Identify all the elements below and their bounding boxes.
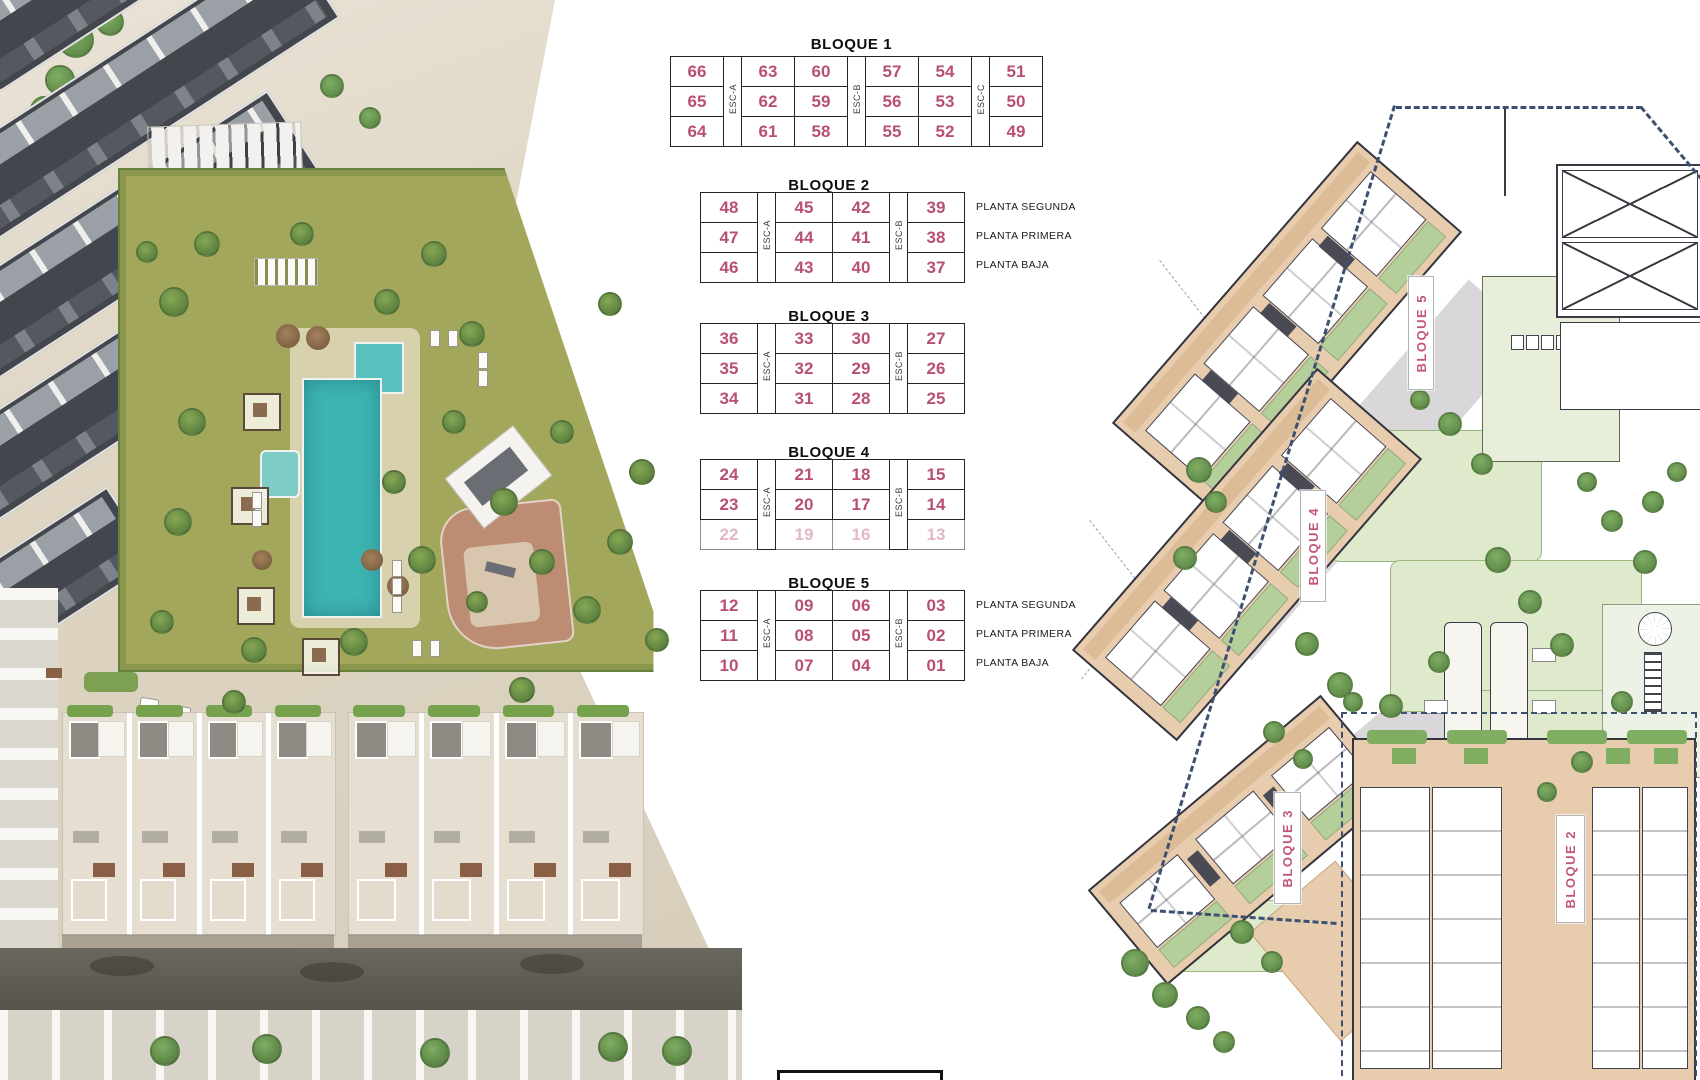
unit-cell: 15 bbox=[908, 460, 965, 490]
palm-tree bbox=[222, 690, 246, 714]
plan-building-label-text: BLOQUE 2 bbox=[1563, 830, 1578, 908]
palm-shadow bbox=[520, 954, 584, 974]
spiral-stair bbox=[1638, 612, 1672, 646]
stairwell-label: ESC-B bbox=[894, 351, 904, 381]
palm-tree bbox=[459, 321, 485, 347]
swimming-pool bbox=[302, 378, 382, 618]
palapa-umbrella bbox=[252, 550, 272, 570]
unit-divider bbox=[197, 713, 202, 935]
stairwell-label: ESC-A bbox=[762, 487, 772, 517]
stairwell-label: ESC-C bbox=[976, 84, 986, 115]
roof-patio bbox=[138, 721, 169, 759]
unit-cell: 56 bbox=[866, 87, 919, 117]
unit-cell: 44 bbox=[776, 223, 833, 253]
unit-cell: 14 bbox=[908, 490, 965, 520]
stair-ramp bbox=[1644, 652, 1662, 712]
plan-tree bbox=[1438, 412, 1462, 436]
plan-tree bbox=[1633, 550, 1657, 574]
lower-patio bbox=[210, 879, 246, 921]
plan-tree bbox=[1152, 982, 1178, 1008]
sun-lounger bbox=[252, 492, 262, 509]
court-bench bbox=[1511, 335, 1524, 350]
unit-cell: 03 bbox=[908, 591, 965, 621]
palm-tree bbox=[136, 241, 158, 263]
plan-tree bbox=[1410, 390, 1430, 410]
palm-tree bbox=[550, 420, 574, 444]
palm-tree bbox=[645, 628, 669, 652]
pergola bbox=[302, 638, 340, 676]
playground bbox=[437, 498, 575, 654]
service-building bbox=[1556, 164, 1700, 318]
roof-hedge bbox=[577, 705, 629, 717]
unit-cell: 54 bbox=[919, 57, 972, 87]
palapa-umbrella bbox=[276, 324, 300, 348]
unit-cell: 51 bbox=[990, 57, 1043, 87]
planta-label: PLANTA PRIMERA bbox=[976, 628, 1072, 640]
roof-dining bbox=[609, 863, 631, 877]
palm-tree bbox=[340, 628, 368, 656]
plan-tree bbox=[1577, 472, 1597, 492]
unit-cell: 49 bbox=[990, 117, 1043, 147]
stairwell-cell: ESC-B bbox=[890, 193, 908, 283]
palm-tree bbox=[382, 470, 406, 494]
plan-tree bbox=[1261, 951, 1283, 973]
planta-label: PLANTA BAJA bbox=[976, 657, 1049, 669]
palm-tree bbox=[490, 488, 518, 516]
unit-cell: 58 bbox=[795, 117, 848, 147]
unit-cell: 61 bbox=[742, 117, 795, 147]
unit-cell: 31 bbox=[776, 384, 833, 414]
boundary-box-bloque-2 bbox=[1341, 712, 1697, 1080]
plan-tree bbox=[1611, 691, 1633, 713]
shrub bbox=[359, 107, 381, 129]
sun-lounger bbox=[478, 370, 488, 387]
roof-room bbox=[387, 721, 416, 757]
palm-tree bbox=[421, 241, 447, 267]
unit-cell: 63 bbox=[742, 57, 795, 87]
roof-room bbox=[462, 721, 491, 757]
plan-tree bbox=[1230, 920, 1254, 944]
roof-patio bbox=[505, 721, 538, 759]
roof-patio bbox=[430, 721, 463, 759]
plan-tree bbox=[1186, 457, 1212, 483]
aerial-render bbox=[0, 0, 742, 1080]
unit-cell: 12 bbox=[701, 591, 758, 621]
unit-cell: 09 bbox=[776, 591, 833, 621]
roof-patio bbox=[355, 721, 388, 759]
roof-hedge bbox=[353, 705, 405, 717]
unit-table-2: 48ESC-A4542ESC-B394744413846434037 bbox=[700, 192, 965, 283]
plan-tree bbox=[1379, 694, 1403, 718]
sun-lounger bbox=[252, 510, 262, 527]
unit-cell: 59 bbox=[795, 87, 848, 117]
roof-dining bbox=[163, 863, 185, 877]
palapa-umbrella bbox=[361, 549, 383, 571]
palm-tree bbox=[241, 637, 267, 663]
roof-room bbox=[237, 721, 263, 757]
court-bench bbox=[1541, 335, 1554, 350]
plan-building-label-text: BLOQUE 4 bbox=[1306, 507, 1321, 585]
plan-tree bbox=[1205, 491, 1227, 513]
unit-cell: 39 bbox=[908, 193, 965, 223]
roof-hedge bbox=[67, 705, 113, 717]
lower-patio bbox=[140, 879, 176, 921]
unit-cell: 65 bbox=[671, 87, 724, 117]
townhouse-block bbox=[348, 712, 644, 936]
unit-cell: 47 bbox=[701, 223, 758, 253]
palm-tree bbox=[442, 410, 466, 434]
plan-tree bbox=[1428, 651, 1450, 673]
stairwell-cell: ESC-B bbox=[890, 591, 908, 681]
unit-cell: 53 bbox=[919, 87, 972, 117]
unit-cell: 62 bbox=[742, 87, 795, 117]
plan-tree bbox=[1485, 547, 1511, 573]
street-tree bbox=[252, 1034, 282, 1064]
sun-lounger bbox=[448, 330, 458, 347]
unit-cell: 55 bbox=[866, 117, 919, 147]
unit-cell: 20 bbox=[776, 490, 833, 520]
unit-cell: 26 bbox=[908, 354, 965, 384]
stairwell-label: ESC-B bbox=[894, 220, 904, 250]
roof-hedge bbox=[136, 705, 182, 717]
palm-tree bbox=[374, 289, 400, 315]
picnic-bench bbox=[46, 668, 62, 678]
roof-dining bbox=[301, 863, 323, 877]
plan-building-label: BLOQUE 4 bbox=[1300, 490, 1326, 602]
lower-patio bbox=[357, 879, 396, 921]
unit-cell: 28 bbox=[833, 384, 890, 414]
braced-bay bbox=[1562, 242, 1698, 310]
palm-tree bbox=[529, 549, 555, 575]
plan-tree bbox=[1263, 721, 1285, 743]
roof-dining bbox=[460, 863, 482, 877]
lower-patio bbox=[279, 879, 315, 921]
roof-hedge bbox=[275, 705, 321, 717]
pergola-shade bbox=[247, 597, 261, 611]
stairwell-cell: ESC-A bbox=[758, 591, 776, 681]
roof-patio bbox=[208, 721, 239, 759]
street-tree bbox=[662, 1036, 692, 1066]
roof-sofa bbox=[212, 831, 238, 843]
legend-box-partial bbox=[777, 1070, 943, 1080]
unit-cell: 04 bbox=[833, 651, 890, 681]
block-table-title: BLOQUE 1 bbox=[670, 36, 1033, 53]
unit-cell: 43 bbox=[776, 253, 833, 283]
unit-cell: 64 bbox=[671, 117, 724, 147]
roof-patio bbox=[69, 721, 100, 759]
court-bench bbox=[1526, 335, 1539, 350]
playground-sand bbox=[463, 541, 541, 628]
plan-tree bbox=[1186, 1006, 1210, 1030]
palm-shadow bbox=[300, 962, 364, 982]
parking-hedge bbox=[84, 672, 138, 692]
stairwell-cell: ESC-B bbox=[890, 460, 908, 550]
townhouse-column bbox=[0, 588, 58, 950]
sun-lounger bbox=[430, 330, 440, 347]
unit-cell: 10 bbox=[701, 651, 758, 681]
roof-dining bbox=[534, 863, 556, 877]
sun-lounger bbox=[392, 596, 402, 613]
unit-table-1: 66ESC-A6360ESC-B5754ESC-C516562595653506… bbox=[670, 56, 1043, 147]
pergola bbox=[243, 393, 281, 431]
unit-table-3: 36ESC-A3330ESC-B273532292634312825 bbox=[700, 323, 965, 414]
site-plan-page: BLOQUE 166ESC-A6360ESC-B5754ESC-C5165625… bbox=[0, 0, 1700, 1080]
townhouse-block bbox=[62, 712, 336, 936]
unit-cell: 23 bbox=[701, 490, 758, 520]
unit-divider bbox=[568, 713, 573, 935]
plan-tree bbox=[1642, 491, 1664, 513]
stairwell-cell: ESC-A bbox=[724, 57, 742, 147]
roof-sofa bbox=[434, 831, 460, 843]
street-tree bbox=[420, 1038, 450, 1068]
palm-tree bbox=[607, 529, 633, 555]
sun-lounger bbox=[392, 560, 402, 577]
unit-cell: 25 bbox=[908, 384, 965, 414]
roof-patio bbox=[579, 721, 612, 759]
unit-cell: 08 bbox=[776, 621, 833, 651]
unit-cell: 22 bbox=[701, 520, 758, 550]
unit-cell: 57 bbox=[866, 57, 919, 87]
stairwell-cell: ESC-A bbox=[758, 460, 776, 550]
roof-room bbox=[98, 721, 124, 757]
palm-shadow bbox=[90, 956, 154, 976]
roof-room bbox=[168, 721, 194, 757]
unit-cell: 35 bbox=[701, 354, 758, 384]
plan-tree bbox=[1293, 749, 1313, 769]
access-ramp bbox=[1560, 322, 1700, 410]
roof-dining bbox=[93, 863, 115, 877]
unit-cell: 50 bbox=[990, 87, 1043, 117]
unit-cell: 36 bbox=[701, 324, 758, 354]
lower-patio bbox=[71, 879, 107, 921]
street-tree bbox=[598, 1032, 628, 1062]
plan-tree bbox=[1295, 632, 1319, 656]
stairwell-label: ESC-B bbox=[894, 487, 904, 517]
street bbox=[0, 948, 742, 1010]
unit-table-5: 12ESC-A0906ESC-B031108050210070401 bbox=[700, 590, 965, 681]
roof-dining bbox=[232, 863, 254, 877]
plan-building-label: BLOQUE 3 bbox=[1274, 792, 1301, 904]
unit-cell: 52 bbox=[919, 117, 972, 147]
unit-cell: 46 bbox=[701, 253, 758, 283]
plan-tree bbox=[1601, 510, 1623, 532]
boundary-line bbox=[1396, 106, 1642, 109]
unit-cell: 01 bbox=[908, 651, 965, 681]
palm-tree bbox=[629, 459, 655, 485]
roof-sofa bbox=[509, 831, 535, 843]
roof-sofa bbox=[281, 831, 307, 843]
palapa-umbrella bbox=[306, 326, 330, 350]
roof-room bbox=[612, 721, 641, 757]
unit-cell: 33 bbox=[776, 324, 833, 354]
unit-cell: 16 bbox=[833, 520, 890, 550]
roof-room bbox=[537, 721, 566, 757]
plan-tree bbox=[1213, 1031, 1235, 1053]
pergola bbox=[231, 487, 269, 525]
plan-tree bbox=[1571, 751, 1593, 773]
unit-divider bbox=[266, 713, 271, 935]
unit-cell: 60 bbox=[795, 57, 848, 87]
plan-tree bbox=[1550, 633, 1574, 657]
unit-cell: 07 bbox=[776, 651, 833, 681]
sun-lounger bbox=[430, 640, 440, 657]
roof-dining bbox=[385, 863, 407, 877]
shrub bbox=[320, 74, 344, 98]
block-shadow bbox=[348, 934, 642, 948]
block-shadow bbox=[62, 934, 334, 948]
unit-cell: 06 bbox=[833, 591, 890, 621]
unit-cell: 19 bbox=[776, 520, 833, 550]
pergola bbox=[237, 587, 275, 625]
palm-tree bbox=[194, 231, 220, 257]
unit-cell: 02 bbox=[908, 621, 965, 651]
stairwell-label: ESC-A bbox=[762, 351, 772, 381]
pergola-shade bbox=[253, 403, 267, 417]
pool-bar-pavilion bbox=[254, 258, 318, 286]
unit-cell: 48 bbox=[701, 193, 758, 223]
plan-tree bbox=[1173, 546, 1197, 570]
lower-patio bbox=[581, 879, 620, 921]
unit-cell: 29 bbox=[833, 354, 890, 384]
palm-tree bbox=[408, 546, 436, 574]
stairwell-label: ESC-A bbox=[728, 84, 738, 114]
unit-divider bbox=[419, 713, 424, 935]
unit-cell: 34 bbox=[701, 384, 758, 414]
stairwell-cell: ESC-C bbox=[972, 57, 990, 147]
plan-tree bbox=[1121, 949, 1149, 977]
stairwell-cell: ESC-B bbox=[848, 57, 866, 147]
planta-label: PLANTA SEGUNDA bbox=[976, 201, 1076, 213]
plan-building-label-text: BLOQUE 5 bbox=[1414, 294, 1429, 372]
unit-divider bbox=[494, 713, 499, 935]
palm-tree bbox=[290, 222, 314, 246]
lower-patio bbox=[507, 879, 546, 921]
roof-sofa bbox=[359, 831, 385, 843]
unit-cell: 11 bbox=[701, 621, 758, 651]
palm-tree bbox=[164, 508, 192, 536]
unit-cell: 24 bbox=[701, 460, 758, 490]
palm-tree bbox=[509, 677, 535, 703]
sun-lounger bbox=[392, 578, 402, 595]
unit-cell: 27 bbox=[908, 324, 965, 354]
bottom-rooftops bbox=[0, 1010, 742, 1080]
unit-cell: 42 bbox=[833, 193, 890, 223]
palm-tree bbox=[150, 610, 174, 634]
plan-tree bbox=[1343, 692, 1363, 712]
unit-cell: 32 bbox=[776, 354, 833, 384]
roof-sofa bbox=[583, 831, 609, 843]
roof-sofa bbox=[73, 831, 99, 843]
lower-patio bbox=[432, 879, 471, 921]
stairwell-label: ESC-B bbox=[852, 84, 862, 114]
unit-cell: 45 bbox=[776, 193, 833, 223]
unit-cell: 13 bbox=[908, 520, 965, 550]
sun-lounger bbox=[478, 352, 488, 369]
palm-tree bbox=[466, 591, 488, 613]
unit-cell: 37 bbox=[908, 253, 965, 283]
roof-hedge bbox=[503, 705, 555, 717]
palm-tree bbox=[159, 287, 189, 317]
sun-lounger bbox=[412, 640, 422, 657]
plan-building-label-text: BLOQUE 3 bbox=[1280, 809, 1295, 887]
roof-patio bbox=[277, 721, 308, 759]
plan-tree bbox=[1471, 453, 1493, 475]
plan-tree bbox=[1518, 590, 1542, 614]
stairwell-cell: ESC-A bbox=[758, 324, 776, 414]
plan-tree bbox=[1667, 462, 1687, 482]
pergola-shade bbox=[312, 648, 326, 662]
unit-cell: 38 bbox=[908, 223, 965, 253]
unit-cell: 18 bbox=[833, 460, 890, 490]
planta-label: PLANTA SEGUNDA bbox=[976, 599, 1076, 611]
stairwell-label: ESC-A bbox=[762, 220, 772, 250]
palm-tree bbox=[598, 292, 622, 316]
stairwell-label: ESC-A bbox=[762, 618, 772, 648]
palm-tree bbox=[178, 408, 206, 436]
stairwell-cell: ESC-B bbox=[890, 324, 908, 414]
stairwell-label: ESC-B bbox=[894, 618, 904, 648]
planta-label: PLANTA BAJA bbox=[976, 259, 1049, 271]
unit-cell: 17 bbox=[833, 490, 890, 520]
palm-tree bbox=[573, 596, 601, 624]
unit-cell: 21 bbox=[776, 460, 833, 490]
plan-building-label: BLOQUE 2 bbox=[1556, 815, 1585, 923]
planta-label: PLANTA PRIMERA bbox=[976, 230, 1072, 242]
roof-sofa bbox=[142, 831, 168, 843]
plan-tree bbox=[1537, 782, 1557, 802]
unit-table-4: 24ESC-A2118ESC-B152320171422191613 bbox=[700, 459, 965, 550]
unit-divider bbox=[127, 713, 132, 935]
street-tree bbox=[150, 1036, 180, 1066]
entry-line bbox=[1504, 108, 1506, 196]
roof-hedge bbox=[428, 705, 480, 717]
roof-room bbox=[306, 721, 332, 757]
braced-bay bbox=[1562, 170, 1698, 238]
unit-cell: 66 bbox=[671, 57, 724, 87]
unit-cell: 41 bbox=[833, 223, 890, 253]
plan-building-label: BLOQUE 5 bbox=[1408, 276, 1434, 390]
stairwell-cell: ESC-A bbox=[758, 193, 776, 283]
unit-cell: 30 bbox=[833, 324, 890, 354]
unit-cell: 40 bbox=[833, 253, 890, 283]
unit-cell: 05 bbox=[833, 621, 890, 651]
